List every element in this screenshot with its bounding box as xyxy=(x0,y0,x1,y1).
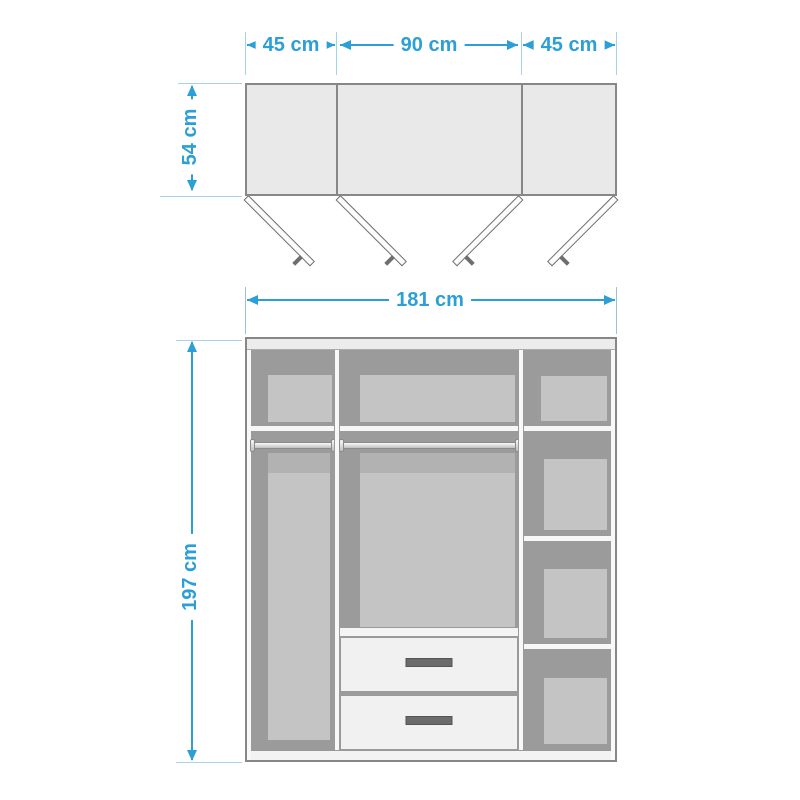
extension-line xyxy=(176,340,242,341)
compartment xyxy=(524,650,611,750)
compartment xyxy=(524,350,611,425)
top-panel xyxy=(247,339,615,350)
shelf xyxy=(340,425,518,432)
door-handle xyxy=(559,255,570,266)
compartment-back-panel xyxy=(544,569,607,638)
extension-line xyxy=(178,83,242,84)
arrow-up-icon xyxy=(187,341,197,352)
drawer-handle xyxy=(406,716,453,725)
arrow-left-icon xyxy=(523,40,534,50)
plan-body xyxy=(245,83,617,196)
compartment-shadow xyxy=(360,453,515,473)
extension-line xyxy=(176,762,242,763)
wardrobe-body xyxy=(245,337,617,762)
open-door-symbol xyxy=(452,195,523,266)
hanging-rail xyxy=(251,442,335,449)
wardrobe-dimension-diagram: 45 cm 90 cm 45 cm 54 cm xyxy=(0,0,800,800)
plan-divider xyxy=(336,85,338,194)
extension-line xyxy=(336,32,337,75)
arrow-right-icon xyxy=(507,40,518,50)
arrow-right-icon xyxy=(604,295,615,305)
compartment-back-panel xyxy=(268,375,332,422)
shelf xyxy=(524,535,611,542)
drawer xyxy=(340,695,518,750)
arrow-down-icon xyxy=(187,750,197,761)
open-door-symbol xyxy=(547,195,618,266)
arrow-down-icon xyxy=(187,180,197,191)
drawer-top-shelf xyxy=(340,627,518,637)
open-door-symbol xyxy=(244,195,315,266)
extension-line xyxy=(160,196,242,197)
arrow-right-icon xyxy=(604,40,615,50)
plinth xyxy=(251,750,611,760)
compartment xyxy=(340,350,518,425)
dim-label-width-middle: 90 cm xyxy=(394,33,465,57)
door-handle xyxy=(292,255,303,266)
shelf xyxy=(524,425,611,432)
open-door-symbol xyxy=(336,195,407,266)
dim-label-depth: 54 cm xyxy=(178,100,202,175)
extension-line xyxy=(245,32,246,75)
dim-label-total-width: 181 cm xyxy=(389,288,471,312)
rail-end-cap xyxy=(250,439,255,452)
hanging-compartment xyxy=(251,432,334,750)
extension-line xyxy=(521,32,522,75)
compartment-shadow xyxy=(268,453,330,473)
shelf xyxy=(251,425,334,432)
compartment-back-panel xyxy=(360,473,515,627)
extension-line xyxy=(245,287,246,334)
door-handle xyxy=(464,255,475,266)
dim-label-width-right: 45 cm xyxy=(534,33,605,57)
dim-label-total-height: 197 cm xyxy=(178,534,202,620)
compartment-back-panel xyxy=(541,376,607,421)
door-handle xyxy=(384,255,395,266)
compartment xyxy=(524,542,611,643)
wardrobe-interior xyxy=(251,350,611,750)
shelf xyxy=(524,643,611,650)
hanging-compartment xyxy=(340,432,518,627)
compartment xyxy=(524,432,611,535)
compartment-back-panel xyxy=(544,459,607,530)
compartment xyxy=(251,350,334,425)
compartment-back-panel xyxy=(268,473,330,740)
rail-end-cap xyxy=(339,439,344,452)
arrow-up-icon xyxy=(187,85,197,96)
arrow-left-icon xyxy=(247,295,258,305)
plan-divider xyxy=(521,85,523,194)
drawer xyxy=(340,637,518,692)
dim-label-width-left: 45 cm xyxy=(256,33,327,57)
extension-line xyxy=(616,32,617,75)
compartment-back-panel xyxy=(360,375,515,422)
arrow-left-icon xyxy=(340,40,351,50)
drawer-handle xyxy=(406,658,453,667)
hanging-rail xyxy=(340,442,519,449)
compartment-back-panel xyxy=(544,678,607,744)
extension-line xyxy=(616,287,617,334)
